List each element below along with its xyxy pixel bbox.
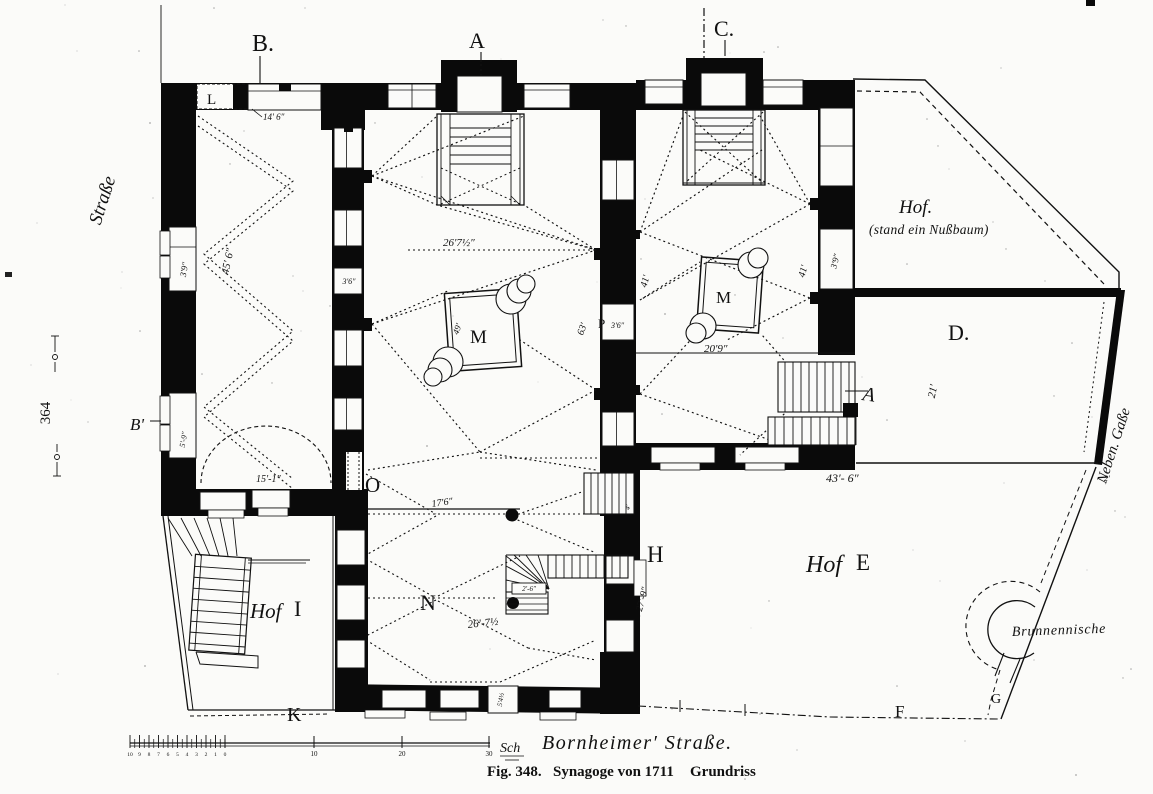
svg-text:20'9″: 20'9″ bbox=[704, 343, 728, 355]
svg-text:I: I bbox=[294, 596, 301, 621]
svg-text:4: 4 bbox=[186, 752, 189, 758]
svg-text:(stand ein Nußbaum): (stand ein Nußbaum) bbox=[869, 222, 989, 237]
svg-text:N: N bbox=[420, 590, 436, 615]
svg-text:L: L bbox=[207, 92, 216, 108]
svg-text:26'7½″: 26'7½″ bbox=[443, 237, 475, 249]
svg-text:H: H bbox=[647, 542, 664, 567]
svg-text:C.: C. bbox=[714, 16, 734, 41]
svg-text:A: A bbox=[469, 28, 485, 53]
svg-text:E: E bbox=[856, 550, 870, 575]
svg-text:2'-6″: 2'-6″ bbox=[522, 585, 536, 593]
svg-text:Hof: Hof bbox=[249, 599, 285, 623]
svg-text:3: 3 bbox=[195, 752, 198, 758]
svg-text:Fig. 348.: Fig. 348. bbox=[487, 764, 542, 780]
svg-text:B.: B. bbox=[252, 31, 274, 57]
svg-text:F: F bbox=[895, 702, 904, 721]
svg-text:10: 10 bbox=[127, 752, 133, 758]
svg-text:K: K bbox=[287, 704, 302, 726]
svg-text:364: 364 bbox=[38, 401, 54, 424]
svg-text:P: P bbox=[598, 316, 605, 331]
svg-text:43'- 6″: 43'- 6″ bbox=[826, 471, 860, 485]
svg-text:B': B' bbox=[130, 415, 144, 434]
svg-text:5: 5 bbox=[176, 752, 179, 758]
svg-text:0: 0 bbox=[224, 752, 227, 758]
svg-text:Grundriss: Grundriss bbox=[690, 764, 756, 780]
svg-text:O: O bbox=[365, 473, 380, 497]
svg-text:8: 8 bbox=[148, 752, 151, 758]
svg-text:3'6″: 3'6″ bbox=[610, 321, 625, 330]
svg-text:9: 9 bbox=[138, 752, 141, 758]
svg-text:1: 1 bbox=[214, 752, 217, 758]
svg-text:10: 10 bbox=[311, 750, 319, 758]
svg-text:7: 7 bbox=[157, 752, 160, 758]
svg-text:D.: D. bbox=[948, 320, 969, 345]
svg-text:M: M bbox=[716, 288, 731, 307]
svg-text:2: 2 bbox=[205, 752, 208, 758]
svg-text:G: G bbox=[991, 692, 1001, 707]
svg-text:6: 6 bbox=[167, 752, 170, 758]
svg-text:Synagoge von 1711: Synagoge von 1711 bbox=[553, 764, 674, 780]
svg-text:14' 6″: 14' 6″ bbox=[263, 112, 285, 122]
svg-text:M: M bbox=[470, 327, 487, 348]
svg-text:20: 20 bbox=[399, 750, 407, 758]
svg-text:15'-1″: 15'-1″ bbox=[256, 474, 281, 485]
svg-text:Bornheimer′ Straße.: Bornheimer′ Straße. bbox=[542, 732, 733, 754]
svg-text:Sch: Sch bbox=[500, 741, 520, 756]
svg-text:3'6″: 3'6″ bbox=[341, 277, 356, 286]
svg-text:30: 30 bbox=[486, 750, 494, 758]
svg-text:Hof: Hof bbox=[805, 552, 845, 578]
svg-text:Hof.: Hof. bbox=[898, 197, 932, 218]
